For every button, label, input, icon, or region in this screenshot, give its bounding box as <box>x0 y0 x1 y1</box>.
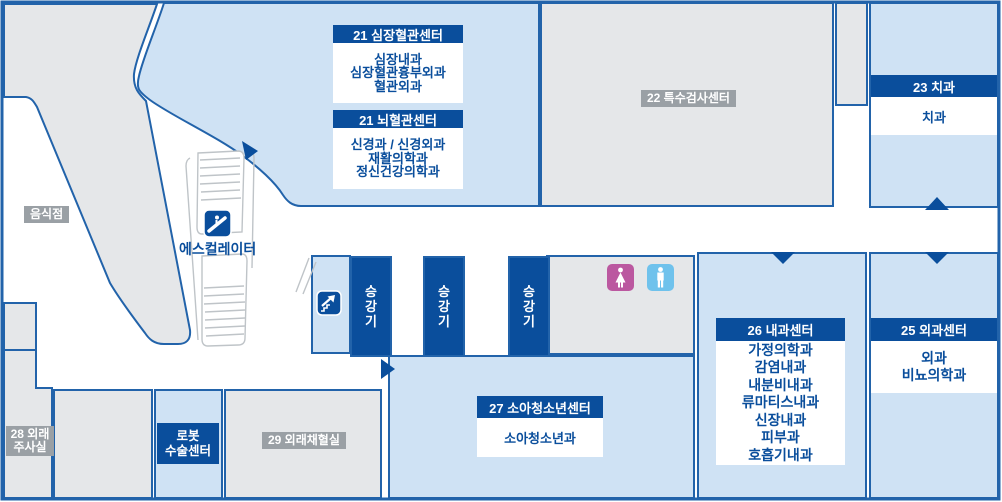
elevator-label-char: 강 <box>365 299 377 314</box>
dept-label: 피부과 <box>761 429 800 447</box>
elevator-label-char: 기 <box>438 314 450 329</box>
escalator-icon <box>204 210 231 237</box>
center-box-internal-title: 26 내과센터 <box>716 318 845 341</box>
center-box-dental-title: 23 치과 <box>871 75 997 97</box>
dept-label: 심장내과 <box>374 53 422 67</box>
restaurant-badge: 음식점 <box>24 206 69 223</box>
robot-surgery-line1: 로봇 <box>176 429 199 444</box>
dept-label: 신장내과 <box>755 412 807 430</box>
dept-label: 정신건강의학과 <box>356 165 440 179</box>
robot-surgery-line2: 수술센터 <box>165 444 211 459</box>
elevator-label-char: 승 <box>438 284 450 299</box>
elevator-label-char: 강 <box>438 299 450 314</box>
special-exam-badge: 22 특수검사센터 <box>641 90 736 107</box>
center-box-neuro-title: 21 뇌혈관센터 <box>333 110 463 128</box>
center-box-pediatric: 27 소아청소년센터 소아청소년과 <box>477 396 603 457</box>
dept-label: 심장혈관흉부외과 <box>350 66 446 80</box>
center-box-pediatric-title: 27 소아청소년센터 <box>477 396 603 418</box>
blood-collection-badge: 29 외래채혈실 <box>262 432 346 449</box>
elevator-label-char: 승 <box>523 284 535 299</box>
dept-label: 내분비내과 <box>748 377 812 395</box>
dept-label: 치과 <box>922 107 946 126</box>
elevator-label-char: 기 <box>523 314 535 329</box>
elevator-1: 승 강 기 <box>350 256 392 357</box>
dept-label: 외과 <box>921 350 947 368</box>
escalator-label: 에스컬레이터 <box>179 239 256 259</box>
elevator-3: 승 강 기 <box>508 256 550 357</box>
center-box-neuro: 21 뇌혈관센터 신경과 / 신경외과 재활의학과 정신건강의학과 <box>333 110 463 189</box>
dept-label: 류마티스내과 <box>742 394 819 412</box>
dept-label: 가정의학과 <box>748 342 812 360</box>
dept-label: 감염내과 <box>755 359 807 377</box>
center-box-surgery-title: 25 외과센터 <box>871 318 997 341</box>
injection-room-line2: 주사실 <box>8 441 52 454</box>
dept-label: 호흡기내과 <box>748 447 812 465</box>
elevator-label-char: 강 <box>523 299 535 314</box>
hospital-floor-map: 21 심장혈관센터 심장내과 심장혈관흉부외과 혈관외과 21 뇌혈관센터 신경… <box>0 0 1002 502</box>
male-restroom-icon <box>647 264 674 291</box>
center-box-internal: 26 내과센터 가정의학과 감염내과 내분비내과 류마티스내과 신장내과 피부과… <box>716 318 845 465</box>
dept-label: 재활의학과 <box>368 152 428 166</box>
dept-label: 비뇨의학과 <box>902 367 966 385</box>
small-room-area <box>836 3 867 105</box>
elevator-2: 승 강 기 <box>423 256 465 357</box>
injection-room-area <box>4 350 52 498</box>
center-box-surgery: 25 외과센터 외과 비뇨의학과 <box>871 318 997 393</box>
stairs-up-icon <box>317 291 341 315</box>
center-box-cardio-title: 21 심장혈관센터 <box>333 25 463 43</box>
elevator-label-char: 기 <box>365 314 377 329</box>
center-box-cardio: 21 심장혈관센터 심장내과 심장혈관흉부외과 혈관외과 <box>333 25 463 103</box>
utility-room-area <box>4 303 36 350</box>
robot-surgery-box: 로봇 수술센터 <box>157 423 219 464</box>
injection-room-badge: 28 외래 주사실 <box>6 426 54 456</box>
center-box-dental: 23 치과 치과 <box>871 75 997 135</box>
dept-label: 혈관외과 <box>374 80 422 94</box>
dept-label: 신경과 / 신경외과 <box>351 138 446 152</box>
dept-label: 소아청소년과 <box>504 428 576 447</box>
elevator-label-char: 승 <box>365 284 377 299</box>
bottom-gray-room <box>54 390 152 498</box>
female-restroom-icon <box>607 264 634 291</box>
